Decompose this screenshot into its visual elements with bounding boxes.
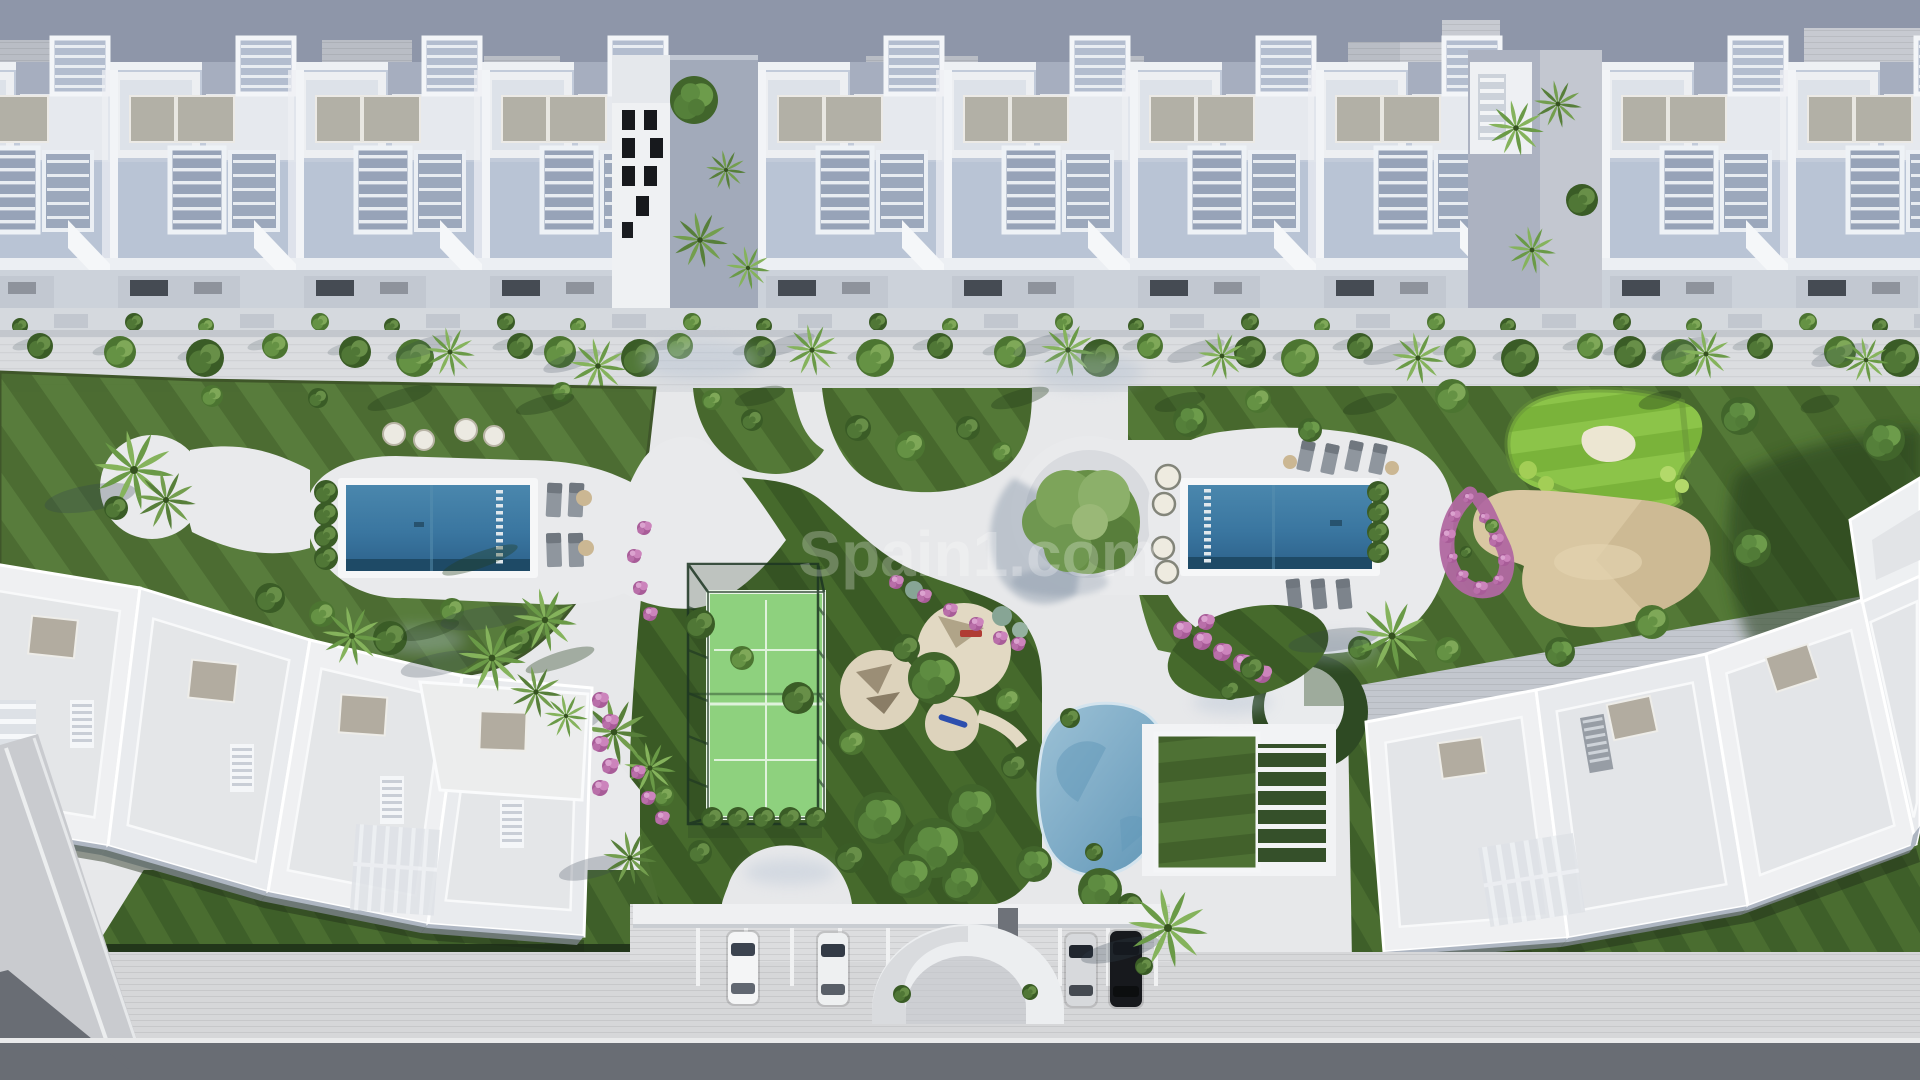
svg-text:Spain1.com: Spain1.com: [798, 518, 1157, 590]
